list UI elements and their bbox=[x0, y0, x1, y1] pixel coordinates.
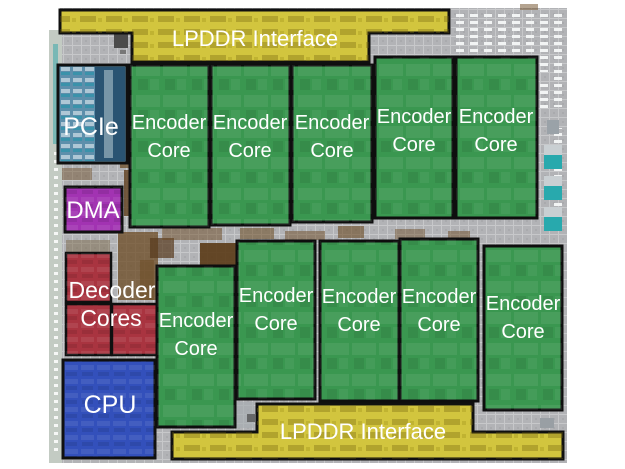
die-photo: LPDDR Interface PCIe DMA Decoder Cores C… bbox=[0, 0, 625, 469]
encoder-label: Encoder bbox=[213, 112, 288, 134]
encoder-core-block-8: Encoder Core bbox=[320, 241, 399, 401]
encoder-core-block-2: Encoder Core bbox=[211, 65, 290, 225]
encoder-label: Encoder bbox=[295, 112, 370, 134]
encoder-label: Encoder bbox=[239, 285, 314, 307]
die-corner-notch bbox=[49, 8, 60, 33]
encoder-label: Encoder bbox=[322, 286, 397, 308]
encoder-label: Core bbox=[392, 134, 435, 156]
encoder-core-block-6: Encoder Core bbox=[157, 266, 235, 427]
lpddr-bottom-label: LPDDR Interface bbox=[280, 419, 446, 444]
encoder-core-block-7: Encoder Core bbox=[237, 241, 315, 399]
die-floorplan: LPDDR Interface PCIe DMA Decoder Cores C… bbox=[0, 0, 625, 469]
decoder-label-line1: Decoder bbox=[69, 277, 156, 303]
pcie-block: PCIe bbox=[58, 65, 127, 163]
encoder-label: Core bbox=[501, 321, 544, 343]
encoder-label: Encoder bbox=[159, 310, 234, 332]
encoder-label: Encoder bbox=[377, 106, 452, 128]
pcie-label: PCIe bbox=[63, 113, 119, 141]
decoder-label-line2: Cores bbox=[80, 305, 141, 331]
lpddr-top-label: LPDDR Interface bbox=[172, 26, 338, 51]
encoder-label: Core bbox=[474, 134, 517, 156]
cpu-label: CPU bbox=[84, 391, 137, 419]
encoder-label: Core bbox=[228, 140, 271, 162]
cpu-block: CPU bbox=[63, 360, 155, 458]
encoder-label: Encoder bbox=[402, 286, 477, 308]
encoder-label: Encoder bbox=[486, 293, 561, 315]
encoder-label: Core bbox=[254, 313, 297, 335]
encoder-core-block-9: Encoder Core bbox=[400, 239, 478, 401]
encoder-core-block-10: Encoder Core bbox=[484, 246, 562, 410]
encoder-core-block-5: Encoder Core bbox=[456, 57, 537, 218]
dma-label: DMA bbox=[66, 197, 119, 224]
encoder-label: Core bbox=[310, 140, 353, 162]
encoder-core-block-4: Encoder Core bbox=[375, 57, 453, 218]
encoder-core-block-3: Encoder Core bbox=[292, 65, 372, 222]
encoder-label: Encoder bbox=[459, 106, 534, 128]
encoder-label: Encoder bbox=[132, 112, 207, 134]
encoder-label: Core bbox=[337, 314, 380, 336]
encoder-label: Core bbox=[174, 338, 217, 360]
encoder-label: Core bbox=[147, 140, 190, 162]
encoder-core-block-1: Encoder Core bbox=[130, 65, 209, 227]
dma-block: DMA bbox=[65, 187, 122, 232]
encoder-label: Core bbox=[417, 314, 460, 336]
